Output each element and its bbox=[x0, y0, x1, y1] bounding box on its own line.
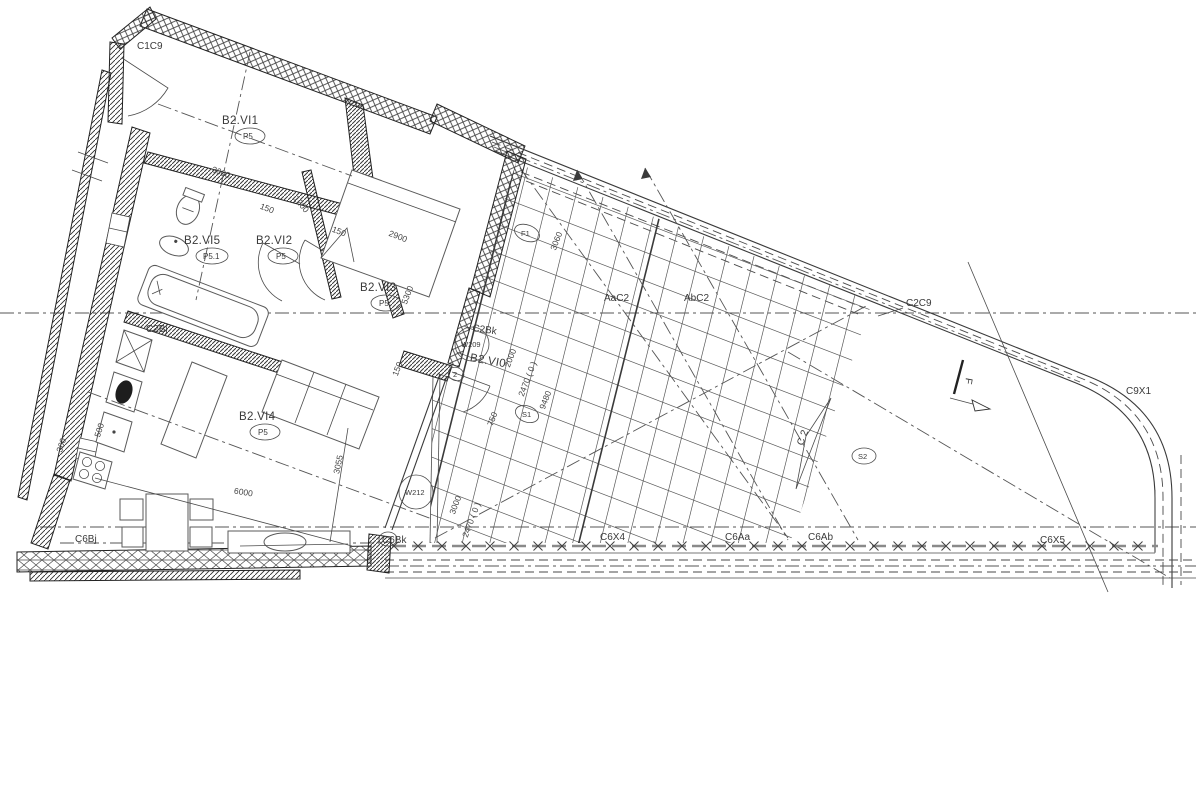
label-c2c9: C2C9 bbox=[906, 298, 932, 309]
room-tag-vi4: P5 bbox=[258, 428, 268, 437]
floor-plan-canvas: F C1C9 C2C9 C9X1 C2Bj C2Bk C6Bj C6Bk C6X… bbox=[0, 0, 1200, 785]
partition-wall bbox=[144, 152, 358, 219]
room-tag-vi2: P5 bbox=[276, 252, 286, 261]
road-outer-edge bbox=[490, 136, 1172, 588]
exterior-wall-corner bbox=[31, 474, 70, 549]
room-label-vi3: B2.VI3 bbox=[360, 282, 396, 294]
room-tag-vi5: P5.1 bbox=[203, 252, 220, 261]
dim-line-3055 bbox=[330, 428, 348, 542]
marker-f1-label: F1 bbox=[521, 229, 530, 238]
flag-pole bbox=[954, 360, 963, 394]
label-c6x4: C6X4 bbox=[600, 532, 625, 543]
stove bbox=[73, 452, 112, 489]
marker-s1-label: S1 bbox=[522, 410, 531, 419]
exterior-wall-right bbox=[471, 151, 526, 297]
flow-arrow-head bbox=[972, 400, 990, 411]
label-c6bj: C6Bj bbox=[75, 534, 97, 545]
dim-2470: 2470 ( 0 ) bbox=[460, 501, 482, 539]
sofa bbox=[262, 360, 379, 449]
building-walls bbox=[17, 7, 526, 581]
label-c1c9: C1C9 bbox=[137, 41, 163, 52]
label-c6aa: C6Aa bbox=[725, 532, 750, 543]
markers: F1 S1 S2 W209 W212 2 bbox=[399, 221, 876, 509]
dining-table bbox=[146, 494, 188, 551]
room-label-vi2: B2.VI2 bbox=[256, 235, 292, 247]
window-tag-w212-label: W212 bbox=[405, 488, 425, 497]
chair bbox=[120, 499, 143, 520]
chair bbox=[190, 499, 213, 520]
floor-plan-page: F C1C9 C2C9 C9X1 C2Bj C2Bk C6Bj C6Bk C6X… bbox=[0, 0, 1200, 785]
chair bbox=[190, 527, 212, 547]
marker-s2-label: S2 bbox=[858, 452, 867, 461]
toilet bbox=[172, 187, 205, 228]
dim-2470: 2470 ( 0 ) bbox=[516, 360, 538, 398]
dim-3060: 3060 bbox=[548, 230, 564, 251]
retaining-strip bbox=[30, 570, 300, 581]
label-c6ab: C6Ab bbox=[808, 532, 833, 543]
road-inner-edge bbox=[495, 151, 1155, 552]
door-swing bbox=[122, 58, 168, 116]
kitchen-island bbox=[161, 362, 227, 458]
room-label-vi1: B2.VI1 bbox=[222, 115, 258, 127]
door-swing bbox=[463, 386, 490, 412]
dim-2000: 2000 bbox=[502, 347, 518, 368]
north-letter: F bbox=[962, 377, 974, 385]
dim-6000: 6000 bbox=[233, 486, 254, 499]
label-c2bk: C2Bk bbox=[472, 323, 499, 337]
north-flow-symbol: F bbox=[950, 360, 990, 411]
dim-150: 150 bbox=[259, 201, 276, 216]
dim-3055: 3055 bbox=[331, 454, 345, 475]
label-aac2: AaC2 bbox=[604, 293, 629, 304]
label-c2bj: C2Bj bbox=[146, 324, 168, 335]
counter-dot bbox=[112, 430, 115, 433]
marker-sigma-label: 2 bbox=[453, 370, 457, 379]
entry-wall-left bbox=[108, 42, 124, 124]
label-c6x5: C6X5 bbox=[1040, 535, 1065, 546]
dim-3000: 3000 bbox=[447, 494, 463, 515]
room-label-vi5: B2.VI5 bbox=[184, 235, 220, 247]
label-abc2: AbC2 bbox=[684, 293, 709, 304]
room-label-vi4: B2.VI4 bbox=[239, 411, 276, 423]
label-c6bk: C6Bk bbox=[382, 535, 407, 546]
room-tag-vi1: P5 bbox=[243, 132, 253, 141]
labels: C1C9 C2C9 C9X1 C2Bj C2Bk C6Bj C6Bk C6X4 … bbox=[75, 41, 1151, 546]
bench-bowl bbox=[264, 533, 306, 551]
exterior-wall-top bbox=[140, 9, 437, 134]
chair bbox=[122, 527, 143, 547]
door-leaf bbox=[452, 372, 490, 386]
window-tag-w209-label: W209 bbox=[461, 340, 481, 349]
room-tag-vi3: P5 bbox=[379, 299, 389, 308]
arrowhead bbox=[641, 168, 651, 179]
partition-wall bbox=[399, 351, 452, 381]
label-c9x1: C9X1 bbox=[1126, 386, 1151, 397]
label-ramp-c2: C 2 bbox=[795, 428, 811, 447]
